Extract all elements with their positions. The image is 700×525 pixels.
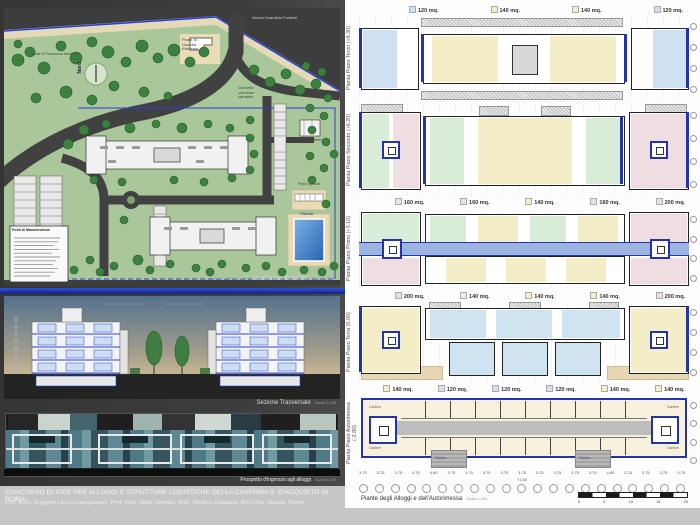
- upper-building: [86, 136, 248, 174]
- walkway-band: [359, 242, 689, 256]
- plan-piano-terra: [359, 302, 689, 382]
- area-label: 200 mq.: [656, 292, 685, 300]
- area-color-swatch: [572, 6, 579, 13]
- plan-side-label-secondo: Pianta Piano Secondo (+6.20): [346, 104, 357, 196]
- plan-side-label-primo: Pianta Piano Primo (+3.10): [346, 210, 357, 288]
- garage-ramp: Rampa: [431, 450, 467, 468]
- area-label: 120 mq.: [546, 385, 575, 393]
- garage-outline: Cantine Cantine Cantine Cantine: [361, 398, 687, 458]
- section-drawing: [4, 296, 340, 399]
- area-color-swatch: [395, 292, 402, 299]
- cantine-label: Cantine: [667, 446, 679, 450]
- garage-boxes-top: [401, 401, 647, 419]
- render-plinth: [4, 469, 340, 476]
- plan-side-label-terzo: Pianta Piano Terzo (+9.30): [346, 16, 357, 100]
- grid-marks: [690, 16, 697, 100]
- blue-divider: [0, 288, 345, 294]
- site-plan-caption: Planimetria d'insiemeScala 1:500: [124, 276, 334, 282]
- plan-autorimessa: Cantine Cantine Cantine Cantine Rampa Ra…: [359, 396, 689, 470]
- plan-piano-secondo: [359, 104, 689, 196]
- area-label: 160 mq.: [590, 198, 619, 206]
- area-label: 140 mq.: [491, 6, 520, 14]
- area-color-swatch: [409, 6, 416, 13]
- render-caption: Prospetto d'ingresso agli alloggiScala 1…: [130, 477, 336, 483]
- area-label-row: 120 mq. 140 mq. 140 mq. 120 mq.: [359, 5, 700, 15]
- area-color-swatch: [656, 292, 663, 299]
- area-color-swatch: [460, 198, 467, 205]
- area-label: 200 mq.: [395, 292, 424, 300]
- area-color-swatch: [546, 385, 553, 392]
- legend-title: Posti di Manutenzione: [12, 228, 66, 232]
- grid-marks: [690, 396, 697, 470]
- plan-side-label-autorimessa: Pianta Piano Autorimessa (-2.80): [346, 396, 357, 470]
- grid-marks: [690, 104, 697, 196]
- competition-board: Nuova Guardiola Portiere Sosta di Tommas…: [0, 0, 700, 525]
- area-label-row: 140 mq. 120 mq. 120 mq. 120 mq. 140 mq. …: [359, 384, 700, 394]
- area-color-swatch: [492, 385, 499, 392]
- area-color-swatch: [438, 385, 445, 392]
- site-plan-drawing: [4, 8, 340, 286]
- cantine-label: Cantine: [369, 446, 381, 450]
- area-color-swatch: [395, 198, 402, 205]
- area-color-swatch: [525, 198, 532, 205]
- left-column: Nuova Guardiola Portiere Sosta di Tommas…: [0, 0, 345, 486]
- area-label-row: 160 mq. 160 mq. 140 mq. 160 mq. 200 mq.: [359, 197, 700, 207]
- plans-panel: 120 mq. 140 mq. 140 mq. 120 mq. Pianta P…: [345, 0, 700, 508]
- label-parco-giochi: Parco giochi: [298, 182, 320, 187]
- label-cancello: Cancello veicolare carrabile: [238, 86, 268, 100]
- area-label: 200 mq.: [656, 198, 685, 206]
- grid-marks: [690, 302, 697, 382]
- area-color-swatch: [383, 385, 390, 392]
- cantine-label: Cantine: [667, 405, 679, 409]
- label-alloggio-portiere: Alloggio Portiere: [292, 138, 324, 143]
- label-nord: Nord: [78, 62, 84, 74]
- label-posto-guardia: Posto di Guardia Esistente: [182, 38, 208, 52]
- legend-box: [10, 226, 68, 282]
- plans-caption: Piante degli Alloggi e dell'AutorimessaS…: [361, 496, 487, 502]
- area-color-swatch: [656, 198, 663, 205]
- dimension-total: 71.50: [359, 477, 685, 482]
- section-panel: [4, 296, 340, 399]
- plan-piano-terzo: [359, 16, 689, 100]
- area-color-swatch: [655, 385, 662, 392]
- lower-building: [150, 217, 276, 255]
- garage-stair-core-left: [369, 416, 397, 444]
- label-piscina: Piscina: [300, 212, 313, 217]
- area-label: 140 mq.: [655, 385, 684, 393]
- swimming-pool: [294, 219, 324, 261]
- render-roof-strip: [8, 414, 336, 430]
- area-label-row: 200 mq. 140 mq. 140 mq. 140 mq. 200 mq.: [359, 291, 700, 301]
- area-label: 160 mq.: [460, 198, 489, 206]
- area-label: 140 mq.: [601, 385, 630, 393]
- area-label: 120 mq.: [492, 385, 521, 393]
- plan-side-label-terra: Pianta Piano Terra (0.00): [346, 302, 357, 382]
- garage-ramp: Rampa: [575, 450, 611, 468]
- site-plan-panel: Nuova Guardiola Portiere Sosta di Tommas…: [4, 8, 340, 286]
- board-authors: Prof. Arch. Ruggero Lenci (capogruppo), …: [5, 500, 350, 506]
- area-label: 140 mq.: [383, 385, 412, 393]
- area-label: 140 mq.: [590, 292, 619, 300]
- label-sosta-marshall: Sosta di Tommaso Marshall: [30, 52, 100, 57]
- graphic-scale-bar: 0 5 10 15 20: [578, 492, 688, 504]
- cantine-label: Cantine: [369, 405, 381, 409]
- dimension-string: 3.75 3.75 3.75 3.75 4.80 3.75 3.75 3.75 …: [359, 470, 685, 475]
- area-label: 120 mq.: [409, 6, 438, 14]
- area-color-swatch: [460, 292, 467, 299]
- plan-piano-primo: [359, 210, 689, 288]
- render-glass-facade: [6, 430, 338, 468]
- area-label: 120 mq.: [654, 6, 683, 14]
- area-label: 160 mq.: [395, 198, 424, 206]
- dash-line: [214, 278, 248, 279]
- section-caption: Sezione TrasversaleScala 1:200: [150, 400, 336, 406]
- garage-corridor: [397, 421, 651, 435]
- label-nuova-guardiola: Nuova Guardiola Portiere: [252, 16, 297, 21]
- area-label: 140 mq.: [525, 198, 554, 206]
- area-color-swatch: [525, 292, 532, 299]
- area-label: 140 mq.: [572, 6, 601, 14]
- area-color-swatch: [601, 385, 608, 392]
- area-label: 140 mq.: [525, 292, 554, 300]
- garage-stair-core-right: [651, 416, 679, 444]
- grid-marks: [690, 210, 697, 288]
- area-color-swatch: [590, 292, 597, 299]
- render-panel: [6, 414, 338, 476]
- area-label: 120 mq.: [438, 385, 467, 393]
- area-color-swatch: [654, 6, 661, 13]
- area-label: 140 mq.: [460, 292, 489, 300]
- area-color-swatch: [590, 198, 597, 205]
- area-color-swatch: [491, 6, 498, 13]
